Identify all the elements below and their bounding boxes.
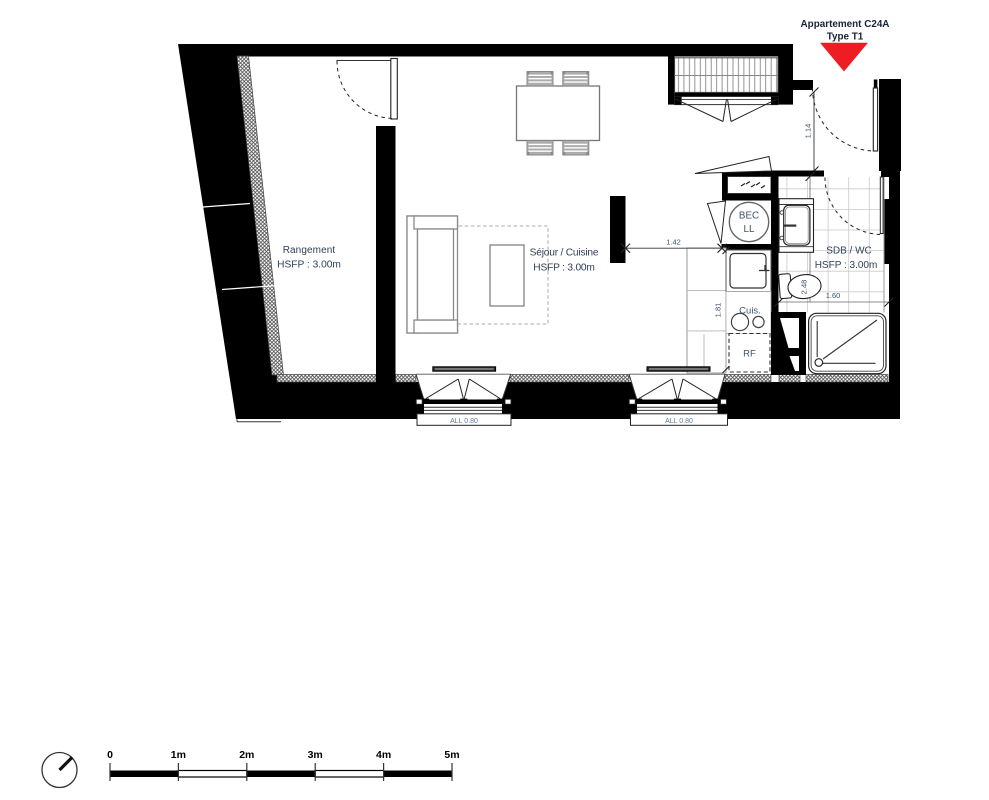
- svg-text:0: 0: [107, 749, 113, 761]
- svg-text:BEC: BEC: [739, 211, 759, 222]
- svg-text:ALL 0.80: ALL 0.80: [450, 418, 478, 425]
- svg-text:Cuis.: Cuis.: [739, 306, 761, 317]
- svg-text:2.48: 2.48: [800, 280, 809, 295]
- svg-text:HSFP : 3.00m: HSFP : 3.00m: [277, 260, 341, 271]
- svg-text:Séjour / Cuisine: Séjour / Cuisine: [530, 248, 599, 259]
- svg-text:1.81: 1.81: [714, 303, 723, 318]
- svg-text:1.42: 1.42: [666, 238, 681, 247]
- svg-text:HSFP : 3.00m: HSFP : 3.00m: [533, 263, 594, 274]
- svg-text:HSFP : 3.00m: HSFP : 3.00m: [815, 260, 878, 271]
- svg-text:ALL 0.80: ALL 0.80: [665, 418, 693, 425]
- svg-text:SDB / WC: SDB / WC: [826, 246, 872, 257]
- svg-text:LL: LL: [744, 224, 755, 235]
- svg-text:Appartement C24A: Appartement C24A: [801, 19, 890, 30]
- svg-text:4m: 4m: [376, 749, 391, 761]
- svg-text:Rangement: Rangement: [283, 245, 336, 256]
- svg-text:RF: RF: [743, 349, 756, 360]
- svg-text:1m: 1m: [171, 749, 186, 761]
- svg-text:1.60: 1.60: [826, 291, 841, 300]
- svg-text:Type T1: Type T1: [827, 32, 864, 43]
- svg-text:1.14: 1.14: [804, 124, 813, 139]
- svg-text:5m: 5m: [444, 749, 459, 761]
- svg-text:3m: 3m: [308, 749, 323, 761]
- svg-text:2m: 2m: [239, 749, 254, 761]
